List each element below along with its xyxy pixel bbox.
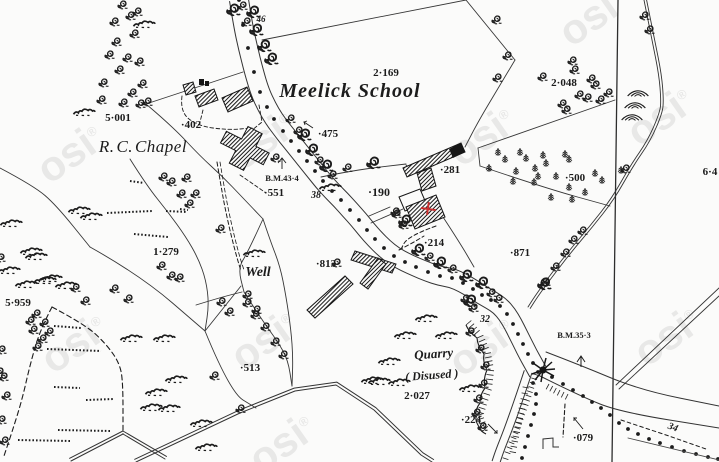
svg-text:46: 46: [256, 14, 267, 24]
svg-text:·475: ·475: [318, 128, 339, 140]
svg-text:6·4: 6·4: [703, 166, 718, 178]
svg-text:32: 32: [479, 314, 490, 325]
svg-text:R. C. Chapel: R. C. Chapel: [98, 137, 187, 156]
svg-text:1·279: 1·279: [153, 246, 179, 258]
svg-text:·224: ·224: [461, 414, 482, 426]
svg-text:·402: ·402: [181, 119, 202, 131]
svg-text:B.M.43·4: B.M.43·4: [265, 173, 299, 183]
svg-text:·190: ·190: [368, 185, 390, 199]
svg-text:·551: ·551: [264, 187, 284, 199]
svg-text:·513: ·513: [240, 362, 261, 374]
svg-text:·079: ·079: [573, 432, 594, 444]
svg-text:2·169: 2·169: [373, 67, 399, 79]
svg-text:5·001: 5·001: [105, 112, 131, 124]
svg-text:·214: ·214: [424, 237, 445, 249]
svg-text:5·959: 5·959: [5, 297, 31, 309]
svg-text:Meelick School: Meelick School: [278, 80, 420, 102]
svg-text:2·048: 2·048: [551, 77, 577, 89]
svg-text:Quarry: Quarry: [414, 345, 454, 363]
svg-text:2·027: 2·027: [404, 390, 430, 402]
svg-text:B.M.35·3: B.M.35·3: [557, 330, 591, 340]
svg-text:38: 38: [310, 190, 321, 201]
svg-text:·281: ·281: [440, 164, 460, 176]
svg-text:·813: ·813: [316, 258, 337, 270]
svg-text:Well: Well: [245, 265, 271, 280]
svg-text:·871: ·871: [510, 247, 530, 259]
svg-text:·500: ·500: [565, 172, 586, 184]
